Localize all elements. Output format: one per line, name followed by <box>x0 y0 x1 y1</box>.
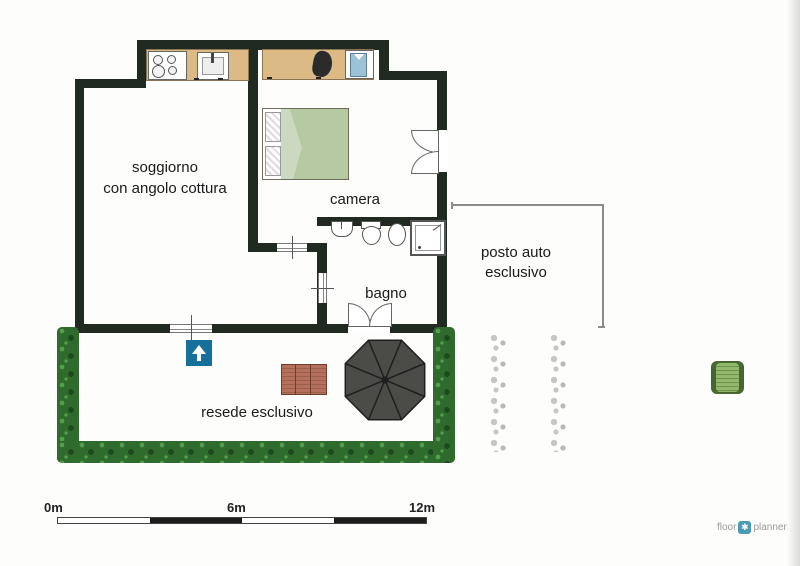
living-label-line2: con angolo cottura <box>75 178 255 199</box>
scale-label-12m: 12m <box>409 500 435 515</box>
wall-notch-v <box>379 40 389 79</box>
carport-boundary-cap <box>451 202 453 209</box>
kitchen-sink-icon <box>197 52 229 80</box>
desk-handle <box>316 77 321 79</box>
scan-edge-shadow <box>787 0 800 566</box>
door-leaf-bedroom-top <box>411 130 439 153</box>
scale-segment <box>334 518 426 523</box>
scale-bar <box>57 517 427 524</box>
carport-label-line1: posto auto <box>456 243 576 263</box>
burner-icon <box>167 55 176 64</box>
shower-drain <box>418 246 421 249</box>
wardrobe-shirt-icon <box>350 53 367 77</box>
scale-segment <box>150 518 242 523</box>
carport-boundary-cap <box>598 326 605 328</box>
logo-text-planner: planner <box>753 522 786 533</box>
scale-label-6m: 6m <box>227 500 246 515</box>
carport-boundary-right <box>602 204 604 328</box>
door-leaf-bedroom-bottom <box>411 151 439 174</box>
wall-notch-h <box>379 71 447 80</box>
logo-text-floor: floor <box>717 522 736 533</box>
washbasin-icon <box>331 221 353 237</box>
wall-topleft <box>75 79 146 88</box>
floorplanner-logo-icon: ✱ <box>738 521 751 534</box>
scale-label-0m: 0m <box>44 500 63 515</box>
pillow-icon <box>265 146 281 176</box>
counter-handle <box>218 78 223 80</box>
carport-boundary-top <box>452 204 604 206</box>
shrub-row-right <box>546 332 574 452</box>
hedge-bottom <box>57 441 455 463</box>
faucet-icon <box>211 53 214 63</box>
floorplanner-logo: floor ✱ planner <box>717 521 787 534</box>
counter-handle <box>194 78 199 80</box>
stove-icon <box>148 51 187 80</box>
burner-icon <box>152 65 165 78</box>
opening-living-hall-tick <box>292 236 293 259</box>
scale-segment <box>58 518 150 523</box>
wall-divider-living-bedroom <box>248 40 258 252</box>
pillow-icon <box>265 112 281 142</box>
room-label-carport: posto auto esclusivo <box>456 243 576 283</box>
double-bed-icon <box>262 108 349 180</box>
carport-label-line2: esclusivo <box>456 263 576 283</box>
shrub-row-left <box>486 332 514 452</box>
room-label-living: soggiorno con angolo cottura <box>75 157 255 199</box>
entrance-arrow-icon <box>186 340 212 366</box>
floorplan-canvas: soggiorno con angolo cottura camera bagn… <box>0 0 800 566</box>
room-label-yard: resede esclusivo <box>177 402 337 423</box>
window-bath-west-tick <box>311 288 334 289</box>
room-label-bedroom: camera <box>300 189 410 210</box>
burner-icon <box>168 66 177 75</box>
garden-table-icon <box>281 364 327 395</box>
wall-right <box>437 71 447 333</box>
arrow-stem <box>197 351 201 361</box>
window-living-south-tick <box>191 315 192 340</box>
armchair-icon <box>711 361 744 394</box>
scale-segment <box>242 518 334 523</box>
door-leaf-bathroom-right <box>369 303 392 327</box>
living-label-line1: soggiorno <box>75 157 255 178</box>
parasol-icon <box>341 336 429 424</box>
toilet-bowl-icon <box>362 226 381 245</box>
wall-left <box>75 79 84 333</box>
room-label-bathroom: bagno <box>341 283 431 304</box>
hedge-right <box>433 327 455 463</box>
wardrobe-icon <box>345 50 374 79</box>
desk-handle <box>267 77 272 79</box>
washbasin-tap <box>341 222 342 229</box>
shower-icon <box>410 220 446 256</box>
bidet-icon <box>388 223 406 246</box>
burner-icon <box>153 55 163 65</box>
door-leaf-bathroom-left <box>348 303 371 327</box>
